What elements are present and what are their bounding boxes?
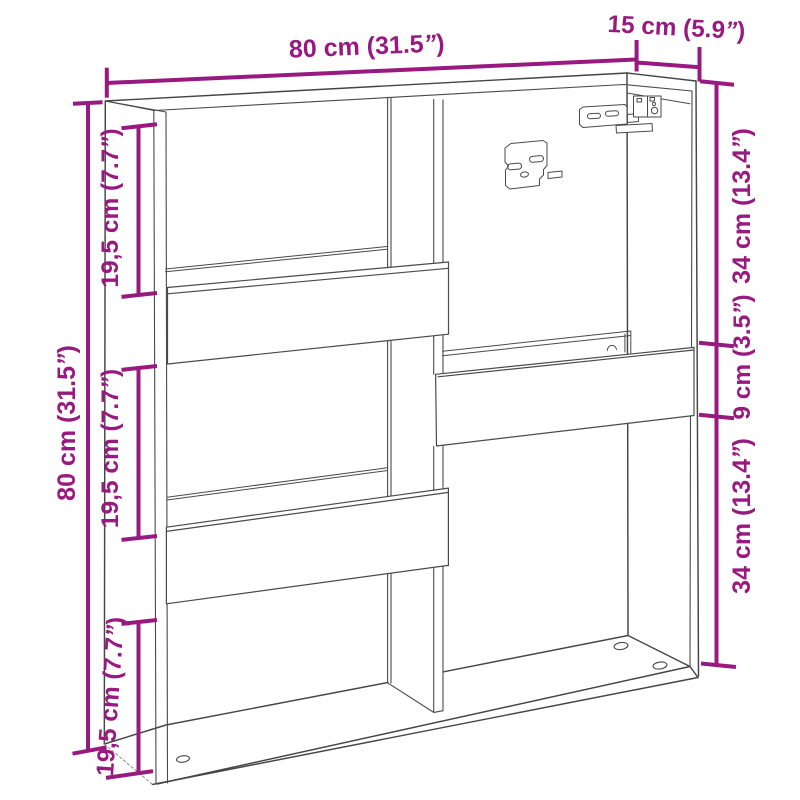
svg-text:34 cm (13.4”): 34 cm (13.4”) xyxy=(728,438,756,594)
svg-text:19,5 cm (7.7”): 19,5 cm (7.7”) xyxy=(97,369,124,528)
svg-text:34 cm (13.4”): 34 cm (13.4”) xyxy=(728,128,756,284)
svg-text:19,5 cm (7.7”): 19,5 cm (7.7”) xyxy=(97,128,124,287)
svg-text:9 cm (3.5”): 9 cm (3.5”) xyxy=(729,294,756,419)
svg-text:80 cm (31.5”): 80 cm (31.5”) xyxy=(53,345,81,501)
